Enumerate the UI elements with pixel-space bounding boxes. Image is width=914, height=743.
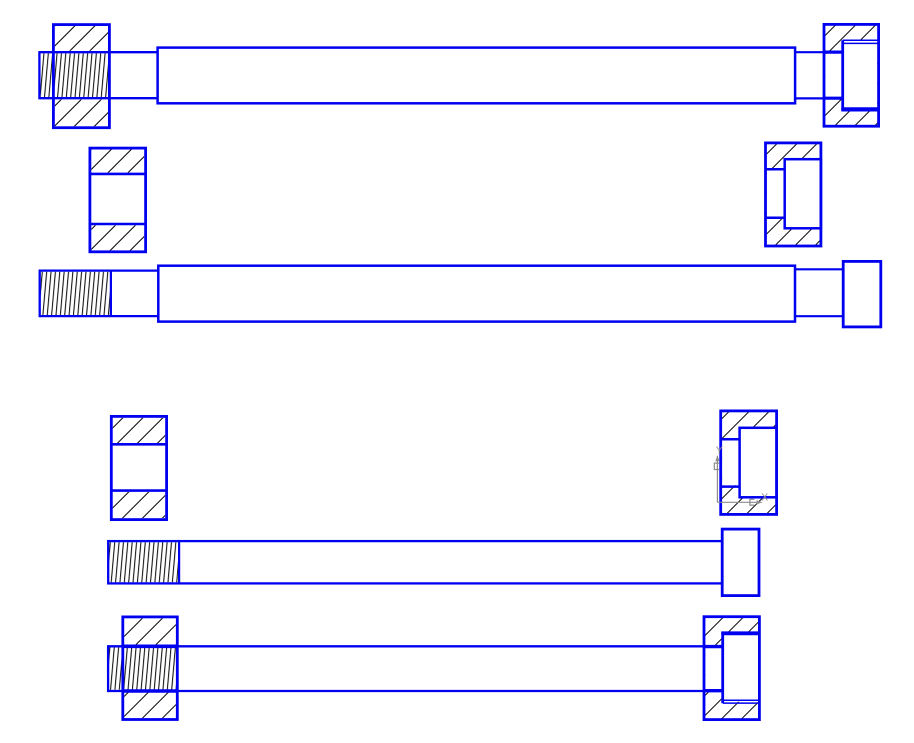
- svg-text:Y: Y: [716, 444, 723, 456]
- svg-text:X: X: [761, 492, 768, 504]
